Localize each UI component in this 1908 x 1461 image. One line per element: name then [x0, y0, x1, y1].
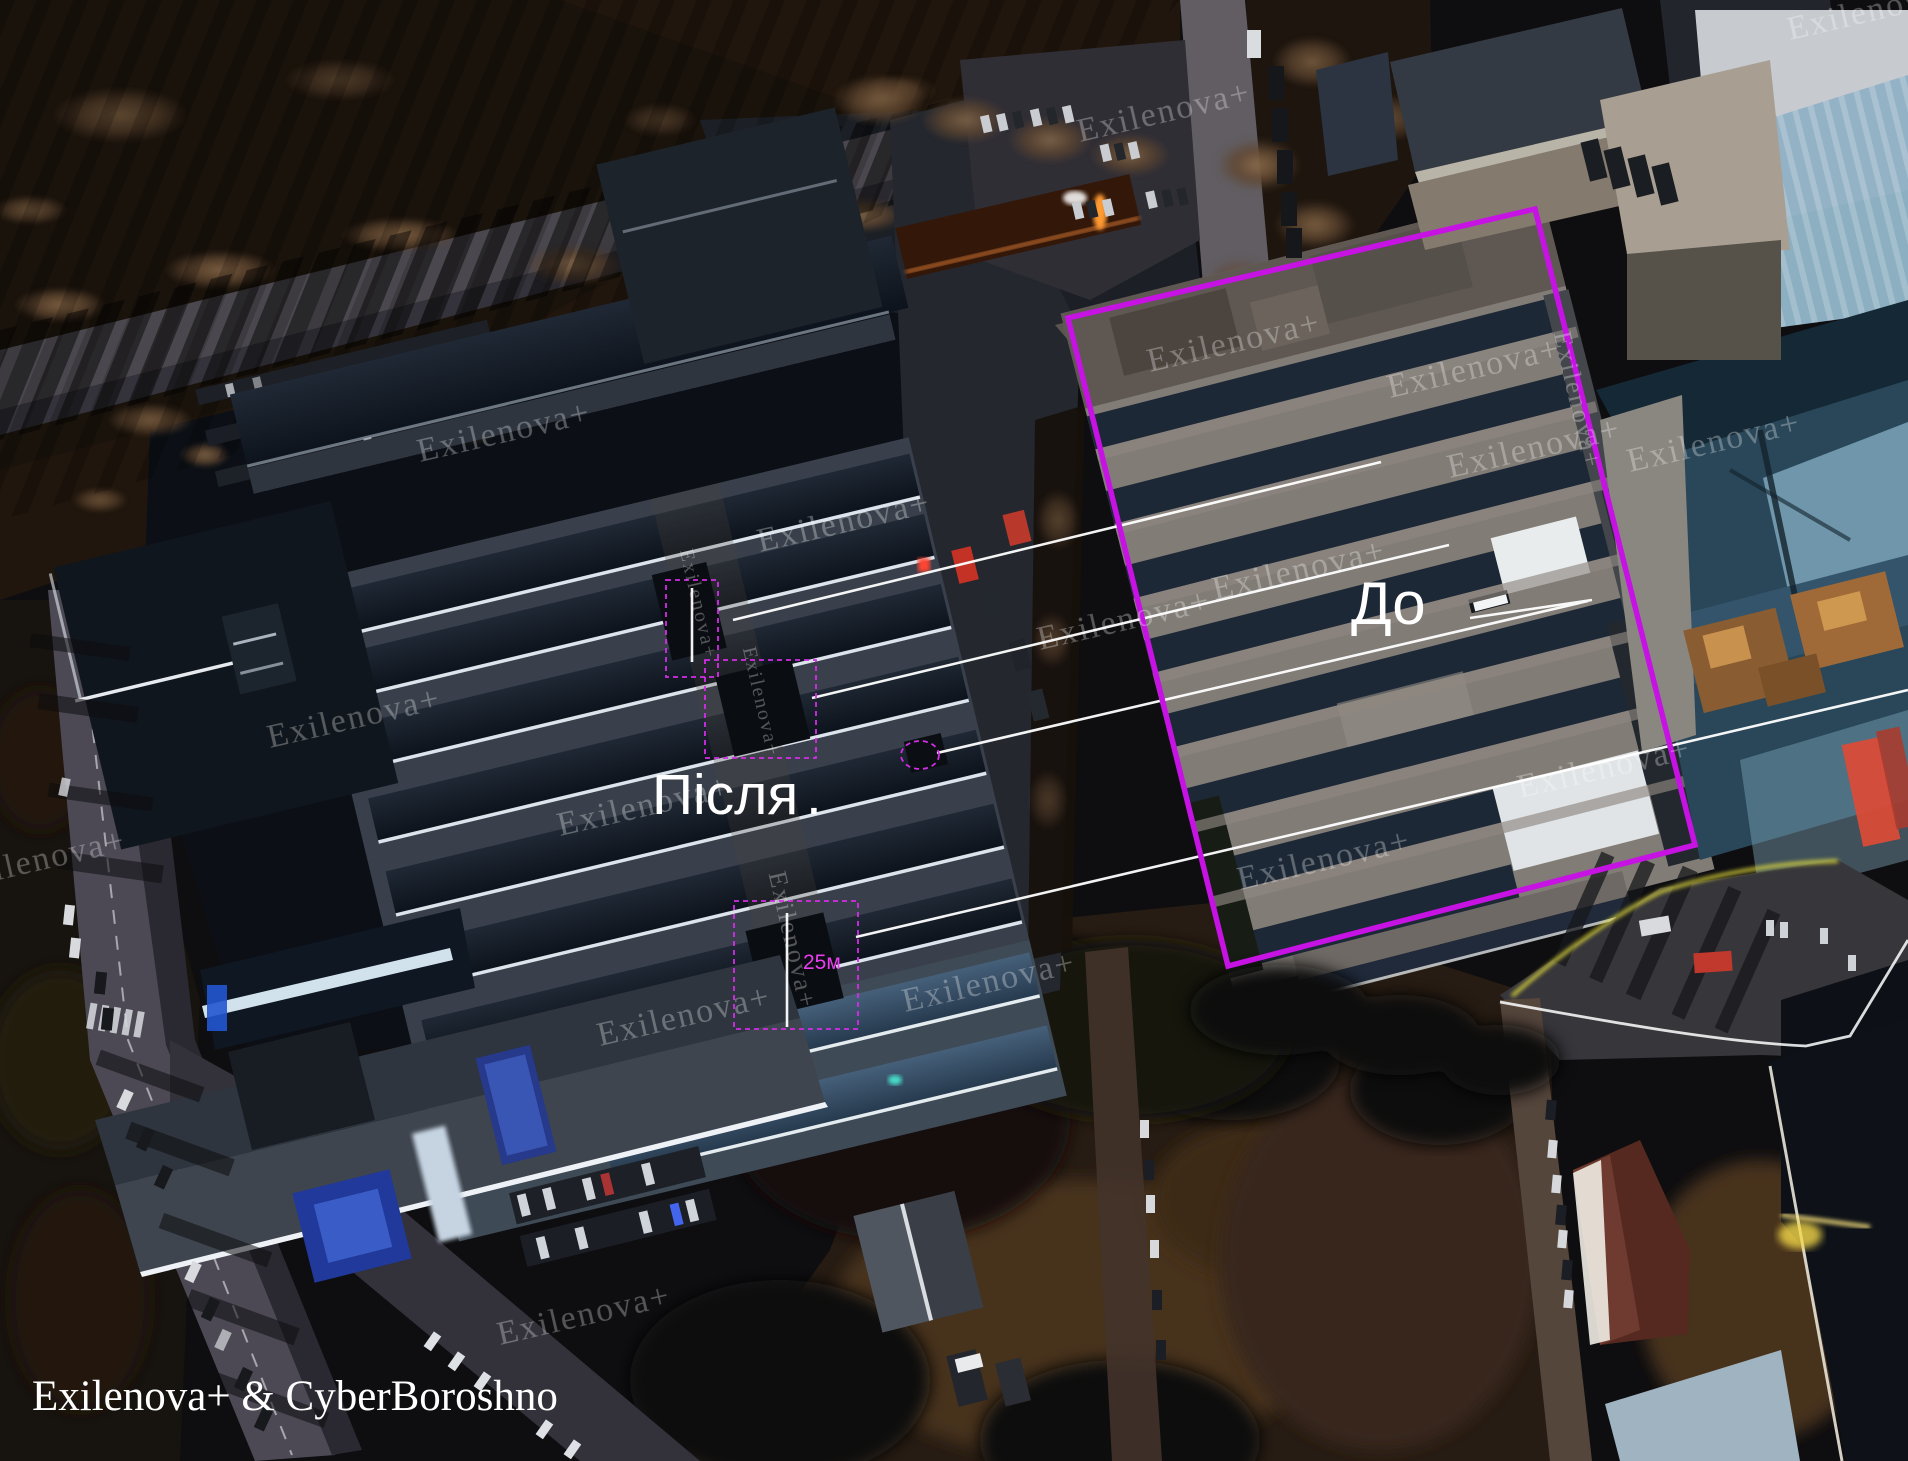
svg-text:.: .: [806, 763, 822, 827]
svg-text:До: До: [1351, 570, 1426, 637]
svg-text:Exilenova+ & CyberBoroshno: Exilenova+ & CyberBoroshno: [32, 1373, 558, 1420]
